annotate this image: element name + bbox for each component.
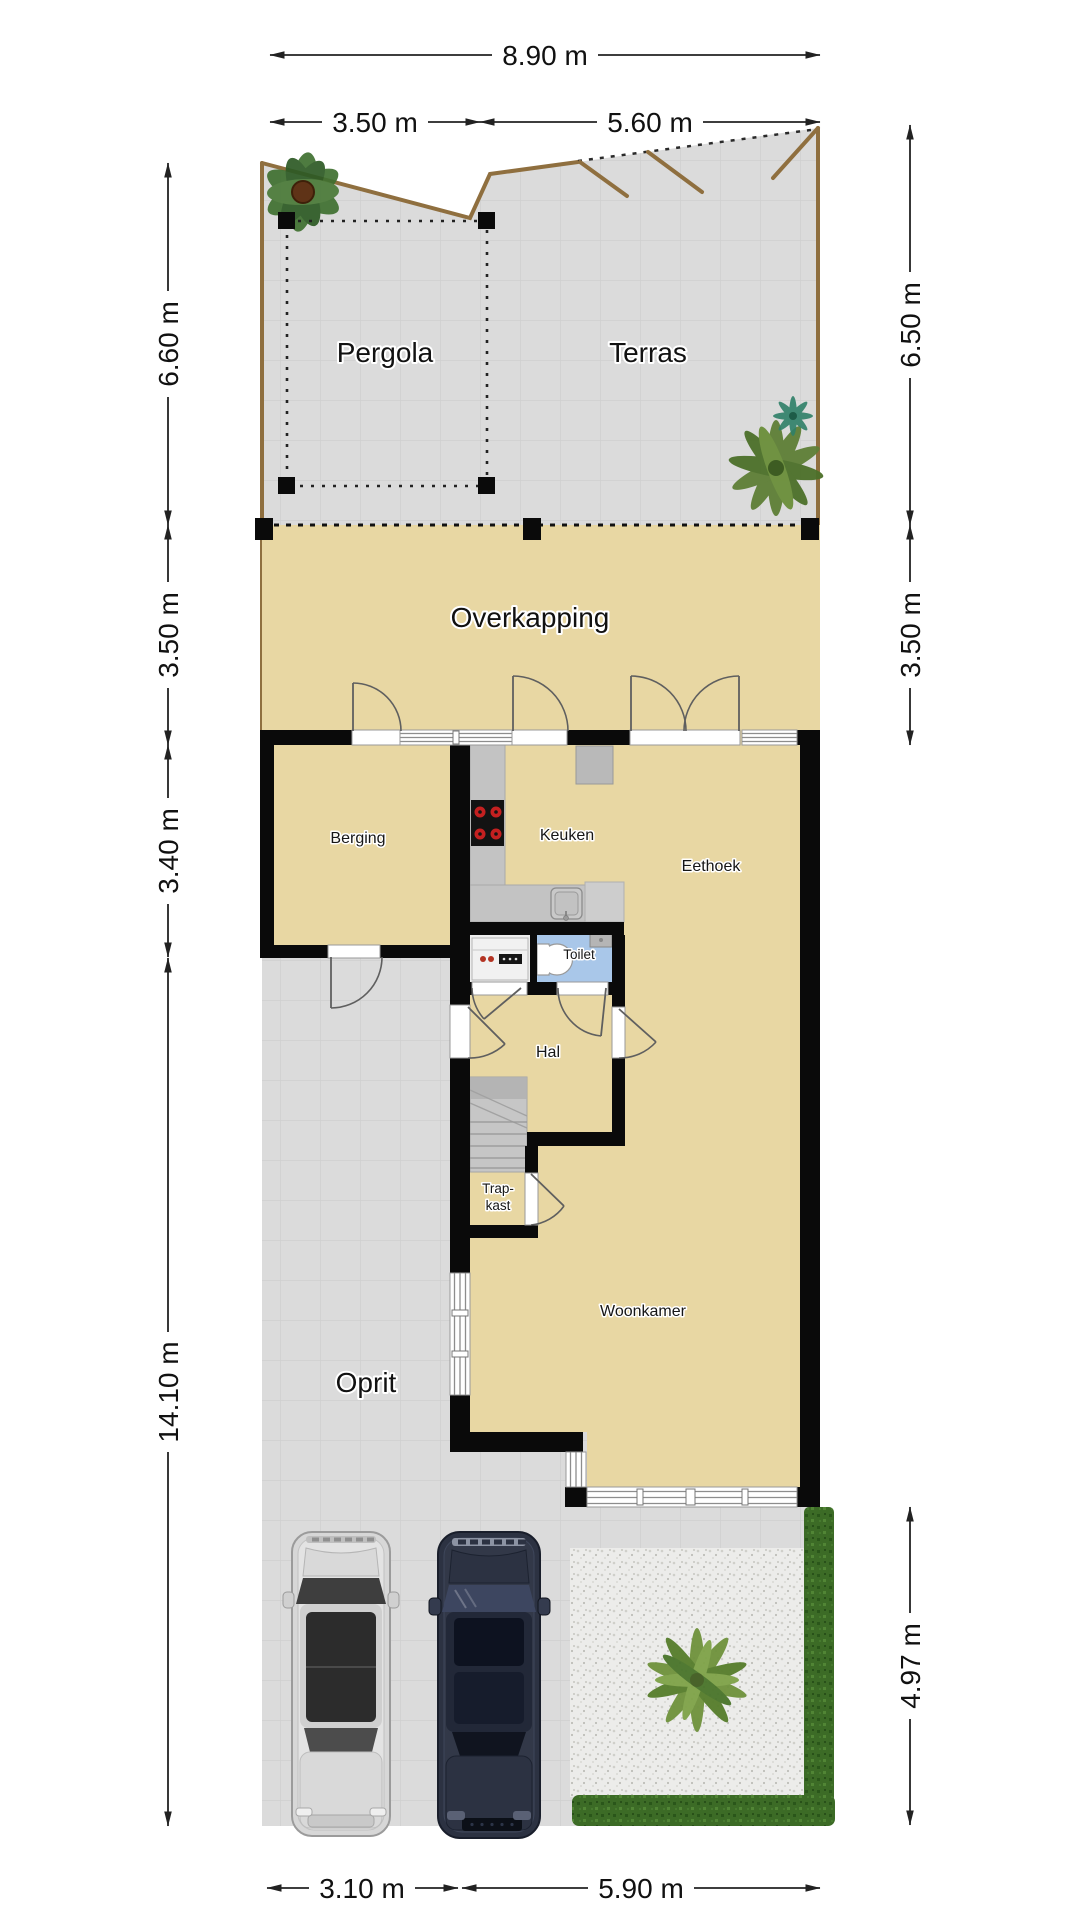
svg-text:5.60 m: 5.60 m	[607, 107, 693, 138]
window-livingroom-bottom	[587, 1487, 797, 1507]
dim-left-driveway: 14.10 m	[151, 958, 185, 1826]
overkapping-post	[523, 518, 541, 540]
dim-right-garden: 6.50 m	[893, 125, 927, 525]
dim-left-garden: 6.60 m	[151, 163, 185, 525]
toilet-sink-icon	[590, 933, 612, 947]
washer-icon	[472, 938, 528, 980]
toilet-label: Toilet	[563, 947, 595, 962]
cooktop-icon	[471, 800, 504, 846]
svg-text:6.60 m: 6.60 m	[153, 301, 184, 387]
dim-right-overkapping: 3.50 m	[893, 525, 927, 745]
car-mirror	[283, 1592, 294, 1608]
car-mirror	[388, 1592, 399, 1608]
overkapping-label: Overkapping	[451, 602, 610, 633]
oprit-label: Oprit	[336, 1367, 397, 1398]
window-dining-top	[742, 730, 797, 745]
trapkast-label-line1: Trap-	[482, 1181, 514, 1196]
stairs	[470, 1077, 527, 1172]
svg-text:8.90 m: 8.90 m	[502, 40, 588, 71]
overkapping-area: Overkapping	[255, 518, 820, 745]
woonkamer-label: Woonkamer	[600, 1303, 687, 1320]
window-kitchen-top	[400, 730, 512, 745]
window-livingroom-small	[566, 1452, 586, 1487]
svg-text:3.40 m: 3.40 m	[153, 808, 184, 894]
overkapping-post	[801, 518, 819, 540]
svg-text:3.50 m: 3.50 m	[895, 592, 926, 678]
dim-bottom-house: 5.90 m	[462, 1871, 820, 1905]
window-livingroom-left	[450, 1273, 470, 1395]
terras-label: Terras	[609, 337, 687, 368]
keuken-label: Keuken	[540, 827, 594, 844]
kitchen-sink-icon	[551, 888, 582, 920]
pergola-label: Pergola	[337, 337, 434, 368]
hal-label: Hal	[536, 1044, 560, 1061]
dim-left-overkapping: 3.50 m	[151, 525, 185, 745]
floorplan-page: Terras Pergola	[0, 0, 1080, 1920]
svg-text:14.10 m: 14.10 m	[153, 1341, 184, 1442]
car-silver	[283, 1532, 399, 1836]
svg-text:3.50 m: 3.50 m	[153, 592, 184, 678]
eethoek-label: Eethoek	[682, 858, 742, 875]
dim-right-garden-bottom: 4.97 m	[893, 1507, 927, 1825]
dim-top-left: 3.50 m	[270, 105, 480, 139]
svg-text:3.10 m: 3.10 m	[319, 1873, 405, 1904]
fridge-icon	[576, 746, 613, 784]
berging-label: Berging	[330, 830, 385, 847]
svg-text:5.90 m: 5.90 m	[598, 1873, 684, 1904]
car-mirror	[538, 1598, 550, 1615]
dim-top-right: 5.60 m	[480, 105, 820, 139]
svg-text:4.97 m: 4.97 m	[895, 1623, 926, 1709]
star-plant-icon	[773, 396, 813, 436]
svg-text:6.50 m: 6.50 m	[895, 282, 926, 368]
dim-left-storage: 3.40 m	[151, 745, 185, 957]
overkapping-post	[255, 518, 273, 540]
svg-text:3.50 m: 3.50 m	[332, 107, 418, 138]
car-mirror	[429, 1598, 441, 1615]
trapkast-label-line2: kast	[486, 1198, 511, 1213]
dim-top-total: 8.90 m	[270, 38, 820, 72]
car-dark	[429, 1532, 550, 1838]
dim-bottom-driveway: 3.10 m	[267, 1871, 458, 1905]
